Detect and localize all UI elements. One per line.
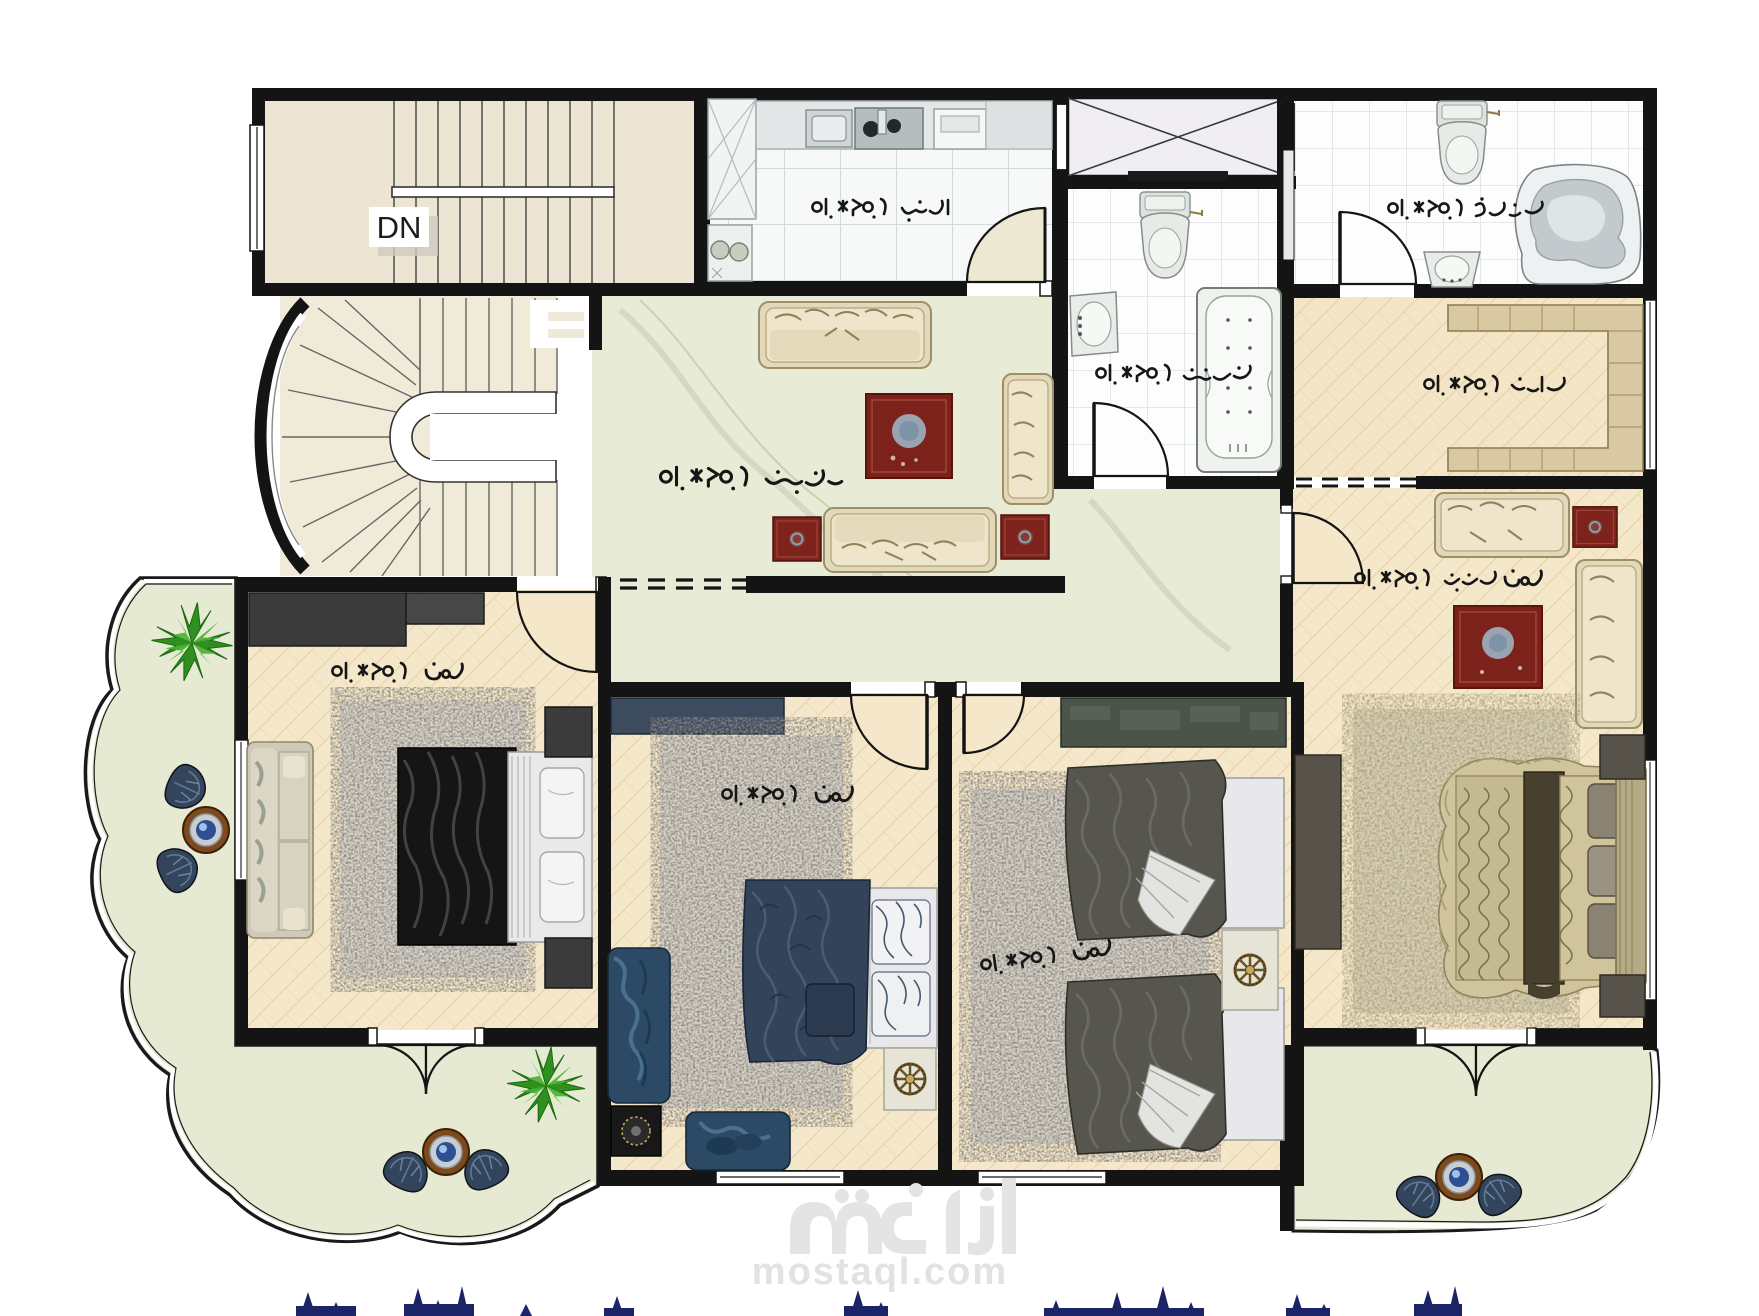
svg-text:mostaql.com: mostaql.com	[752, 1251, 1008, 1293]
svg-text:DN: DN	[377, 210, 422, 245]
